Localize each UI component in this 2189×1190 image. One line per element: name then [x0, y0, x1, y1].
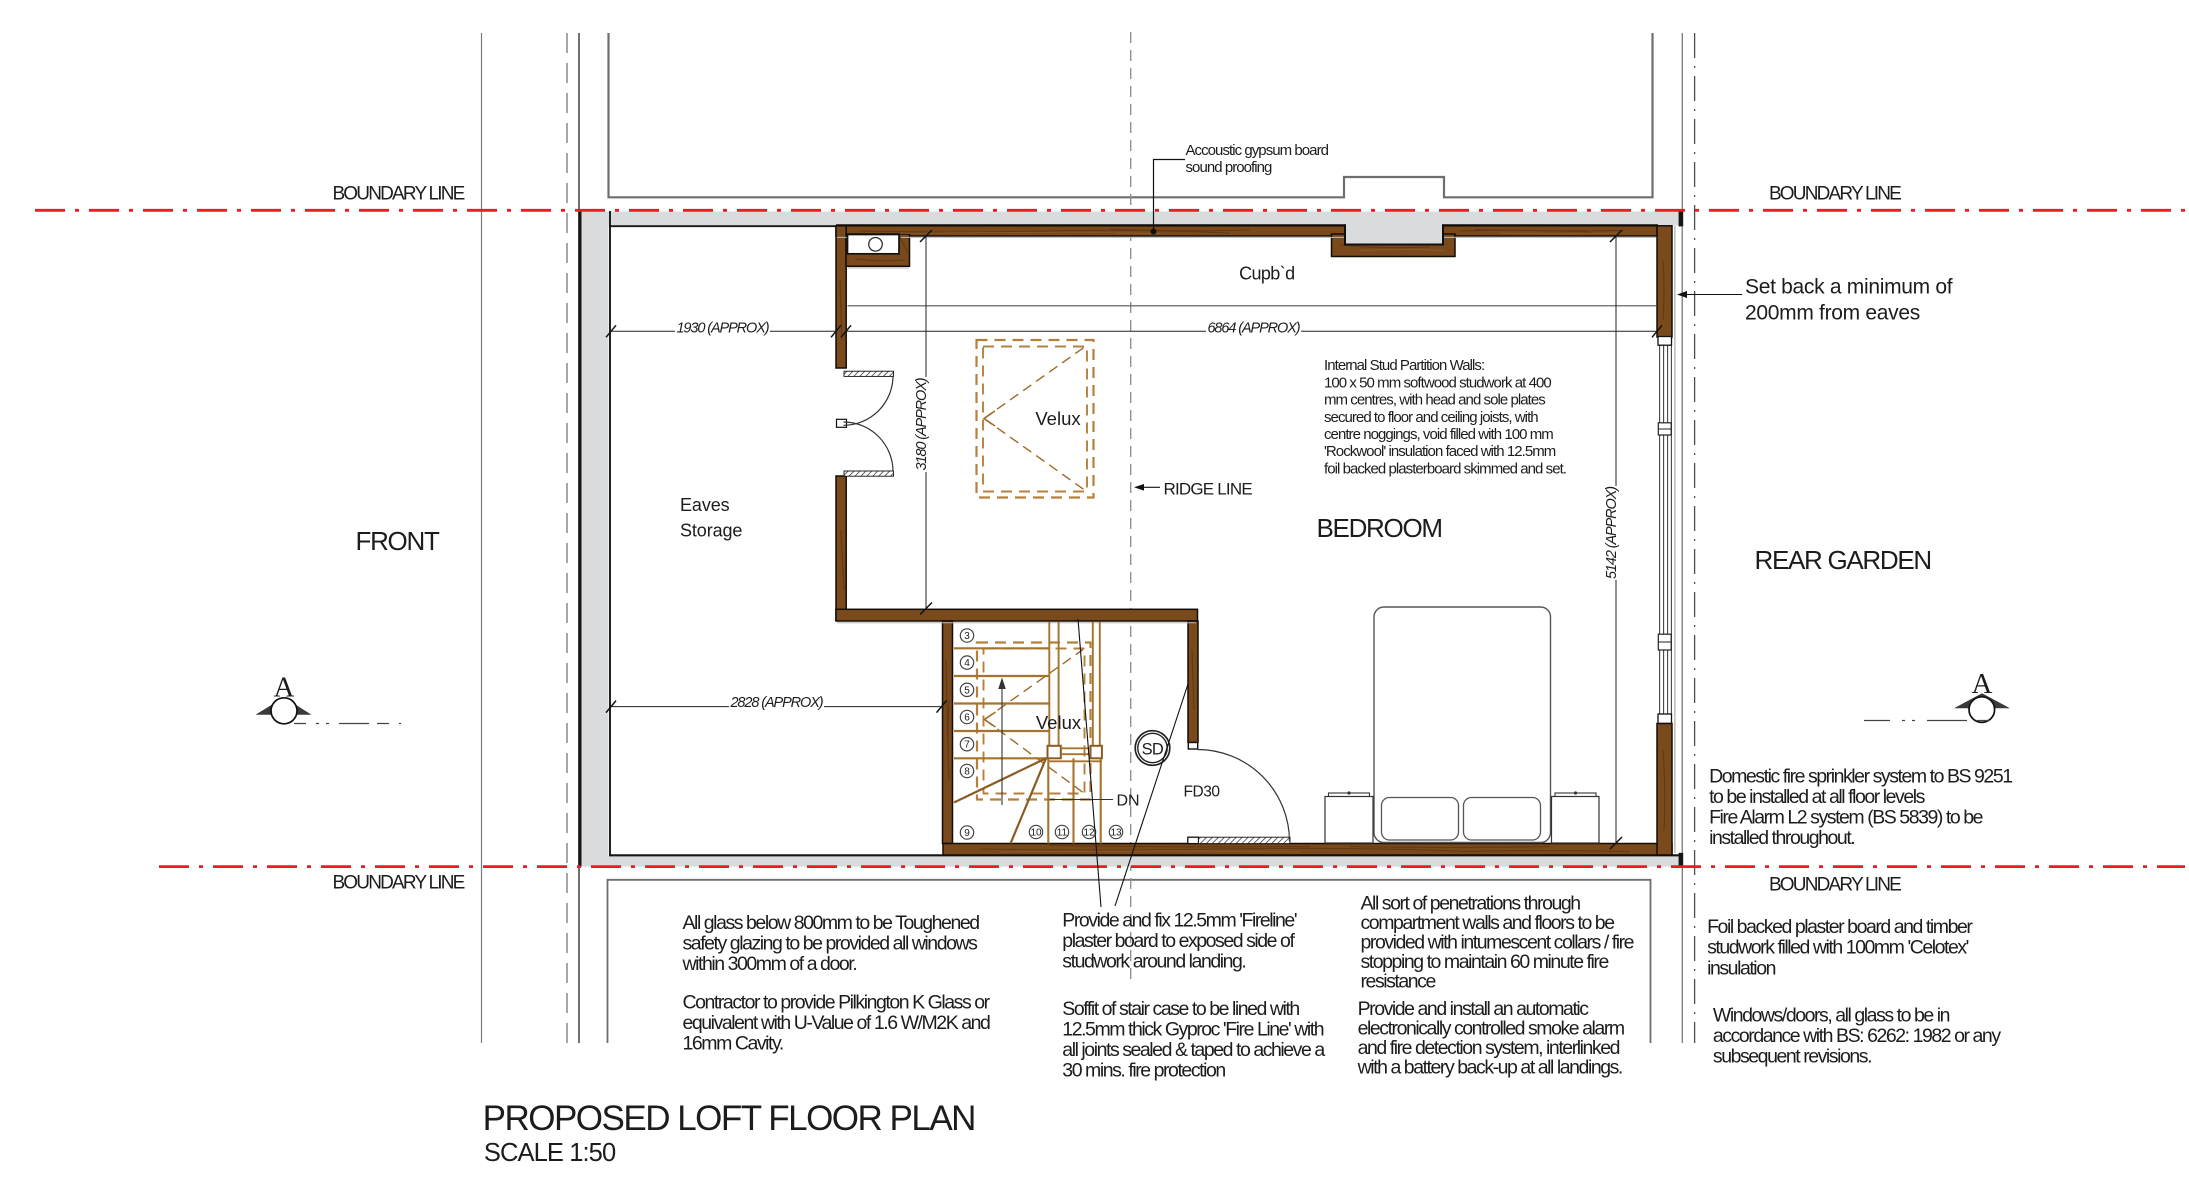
svg-text:'Rockwool' insulation faced wi: 'Rockwool' insulation faced with 12.5mm — [1324, 443, 1556, 460]
svg-text:11: 11 — [1057, 828, 1068, 839]
svg-text:RIDGE LINE: RIDGE LINE — [1164, 480, 1253, 499]
svg-text:All glass below 800mm to be To: All glass below 800mm to be Toughened — [683, 912, 980, 934]
svg-text:resistance: resistance — [1361, 970, 1436, 992]
svg-text:Cupb`d: Cupb`d — [1239, 264, 1294, 284]
svg-text:studwork around landing.: studwork around landing. — [1062, 951, 1245, 973]
svg-text:accordance with BS: 6262: 1982: accordance with BS: 6262: 1982 or any — [1713, 1025, 2001, 1047]
svg-text:BOUNDARY LINE: BOUNDARY LINE — [332, 873, 464, 894]
svg-text:Velux: Velux — [1036, 712, 1082, 733]
svg-text:200mm from eaves: 200mm from eaves — [1745, 302, 1920, 325]
svg-text:studwork filled with 100mm 'Ce: studwork filled with 100mm 'Celotex' — [1707, 937, 1969, 959]
svg-text:A: A — [274, 672, 295, 704]
svg-text:with a battery back-up at all: with a battery back-up at all landings. — [1357, 1056, 1622, 1078]
svg-text:SCALE 1:50: SCALE 1:50 — [484, 1139, 616, 1167]
svg-text:12: 12 — [1083, 828, 1095, 839]
svg-text:Velux: Velux — [1035, 408, 1081, 429]
svg-text:10: 10 — [1030, 828, 1042, 839]
svg-text:to be installed at all floor l: to be installed at all floor levels — [1709, 786, 1926, 808]
svg-text:BOUNDARY LINE: BOUNDARY LINE — [1769, 875, 1901, 896]
svg-text:8: 8 — [964, 767, 970, 778]
svg-text:equivalent with U-Value of 1.6: equivalent with U-Value of 1.6 W/M2K and — [683, 1012, 991, 1034]
svg-text:Fire Alarm L2 system (BS 5839): Fire Alarm L2 system (BS 5839) to be — [1709, 807, 1983, 829]
svg-text:Eaves: Eaves — [680, 495, 730, 515]
svg-text:BOUNDARY LINE: BOUNDARY LINE — [1769, 184, 1901, 205]
svg-text:PROPOSED LOFT FLOOR PLAN: PROPOSED LOFT FLOOR PLAN — [483, 1099, 975, 1138]
svg-text:6864 (APPROX): 6864 (APPROX) — [1207, 320, 1299, 336]
svg-text:centre noggings, void filled w: centre noggings, void filled with 100 mm — [1324, 426, 1553, 443]
svg-text:Domestic fire sprinkler system: Domestic fire sprinkler system to BS 925… — [1709, 766, 2012, 788]
svg-text:100 x 50 mm softwood studwork: 100 x 50 mm softwood studwork at 400 — [1324, 374, 1551, 391]
svg-text:insulation: insulation — [1707, 957, 1775, 979]
svg-text:Provide and fix 12.5mm 'Fireli: Provide and fix 12.5mm 'Fireline' — [1062, 910, 1297, 932]
svg-text:BEDROOM: BEDROOM — [1317, 513, 1442, 543]
svg-text:Soffit of stair case to be lin: Soffit of stair case to be lined with — [1062, 998, 1299, 1020]
svg-text:plaster board to exposed side: plaster board to exposed side of — [1062, 930, 1295, 952]
svg-text:installed throughout.: installed throughout. — [1709, 827, 1854, 849]
svg-text:16mm Cavity.: 16mm Cavity. — [683, 1032, 783, 1054]
svg-text:Contractor to provide Pilkingt: Contractor to provide Pilkington K Glass… — [683, 991, 991, 1013]
svg-text:13: 13 — [1110, 828, 1122, 839]
svg-text:sound proofing: sound proofing — [1186, 159, 1273, 176]
svg-text:4: 4 — [964, 658, 970, 669]
svg-text:mm centres, with head and sole: mm centres, with head and sole plates — [1324, 392, 1545, 409]
svg-text:FRONT: FRONT — [356, 526, 440, 556]
svg-text:3: 3 — [964, 631, 970, 642]
svg-text:within 300mm of a door.: within 300mm of a door. — [682, 953, 857, 975]
svg-text:BOUNDARY LINE: BOUNDARY LINE — [332, 184, 464, 205]
svg-text:A: A — [1972, 668, 1993, 700]
svg-text:9: 9 — [964, 828, 970, 839]
svg-text:5142 (APPROX): 5142 (APPROX) — [1604, 487, 1620, 579]
svg-text:SD: SD — [1142, 740, 1164, 758]
svg-text:FD30: FD30 — [1184, 784, 1221, 801]
svg-text:subsequent revisions.: subsequent revisions. — [1713, 1046, 1871, 1068]
svg-text:Accoustic gypsum board: Accoustic gypsum board — [1186, 142, 1329, 159]
svg-text:DN: DN — [1117, 793, 1140, 810]
svg-text:Storage: Storage — [680, 521, 742, 541]
svg-text:30 mins. fire protection: 30 mins. fire protection — [1062, 1059, 1225, 1081]
svg-text:2828 (APPROX): 2828 (APPROX) — [729, 695, 822, 711]
svg-text:5: 5 — [964, 685, 970, 696]
svg-text:Foil backed plaster board and: Foil backed plaster board and timber — [1707, 916, 1973, 938]
svg-text:6: 6 — [964, 713, 970, 724]
svg-text:safety glazing to be provided: safety glazing to be provided all window… — [683, 933, 979, 955]
svg-text:12.5mm thick Gyproc 'Fire Line: 12.5mm thick Gyproc 'Fire Line' with — [1062, 1018, 1323, 1040]
svg-text:Set back a minimum of: Set back a minimum of — [1745, 276, 1953, 299]
svg-text:7: 7 — [964, 740, 970, 751]
svg-text:Windows/doors, all glass to be: Windows/doors, all glass to be in — [1713, 1004, 1950, 1026]
svg-text:all joints sealed & taped to a: all joints sealed & taped to achieve a — [1062, 1039, 1325, 1061]
svg-text:REAR GARDEN: REAR GARDEN — [1755, 545, 1931, 575]
svg-text:secured to floor and ceiling j: secured to floor and ceiling joists, wit… — [1324, 409, 1538, 426]
svg-text:foil backed plasterboard skimm: foil backed plasterboard skimmed and set… — [1324, 460, 1566, 477]
svg-text:Internal Stud Partition Walls:: Internal Stud Partition Walls: — [1324, 357, 1484, 374]
svg-text:3180 (APPROX): 3180 (APPROX) — [914, 378, 930, 470]
svg-text:1930 (APPROX): 1930 (APPROX) — [676, 320, 768, 336]
